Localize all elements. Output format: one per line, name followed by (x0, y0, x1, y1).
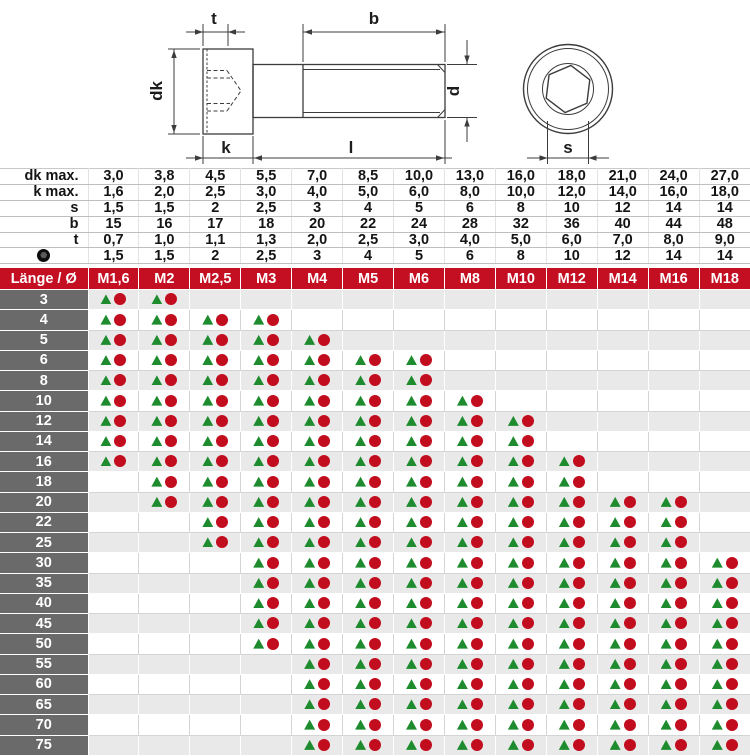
availability-cell (699, 492, 750, 512)
available-triangle-icon (100, 335, 111, 345)
availability-cell (546, 614, 597, 634)
screw-side-view (203, 49, 445, 134)
availability-cell (444, 573, 495, 593)
availability-cell (241, 695, 292, 715)
availability-cell (139, 674, 190, 694)
dim-label-s: s (563, 138, 572, 157)
spec-value: 1,1 (190, 232, 241, 248)
availability-cell (699, 573, 750, 593)
availability-markers (406, 739, 432, 751)
availability-cell (597, 553, 648, 573)
availability-cell (292, 472, 343, 492)
availability-markers (457, 496, 483, 508)
availability-cell (546, 290, 597, 310)
availability-cell (292, 411, 343, 431)
availability-cell (139, 391, 190, 411)
availability-cell (343, 614, 394, 634)
spec-row: 1,51,522,53456810121414 (0, 248, 750, 264)
available-circle-icon (471, 536, 483, 548)
availability-markers (559, 658, 585, 670)
availability-markers (661, 557, 687, 569)
availability-markers (610, 597, 636, 609)
available-circle-icon (573, 638, 585, 650)
available-triangle-icon (355, 618, 366, 628)
available-circle-icon (114, 293, 126, 305)
spec-table-body: dk max.3,03,84,55,57,08,510,013,016,018,… (0, 169, 750, 264)
availability-markers (406, 617, 432, 629)
available-circle-icon (420, 536, 432, 548)
available-triangle-icon (151, 456, 162, 466)
available-triangle-icon (253, 335, 264, 345)
availability-cell (597, 533, 648, 553)
availability-cell (241, 350, 292, 370)
availability-cell (699, 735, 750, 755)
available-circle-icon (318, 536, 330, 548)
availability-markers (508, 597, 534, 609)
availability-markers (100, 334, 126, 346)
available-circle-icon (318, 435, 330, 447)
available-circle-icon (522, 516, 534, 528)
availability-cell (292, 350, 343, 370)
availability-cell (292, 431, 343, 451)
available-triangle-icon (559, 618, 570, 628)
availability-cell (394, 512, 445, 532)
size-column-header: M16 (648, 268, 699, 290)
availability-cell (88, 614, 139, 634)
availability-cell (546, 674, 597, 694)
spec-value: 3,0 (394, 232, 445, 248)
available-triangle-icon (151, 294, 162, 304)
availability-cell (394, 391, 445, 411)
availability-markers (457, 435, 483, 447)
availability-cell (292, 330, 343, 350)
available-circle-icon (267, 476, 279, 488)
availability-markers (100, 435, 126, 447)
spec-row-label: s (0, 200, 88, 216)
availability-cell (292, 492, 343, 512)
available-triangle-icon (100, 396, 111, 406)
available-triangle-icon (355, 396, 366, 406)
availability-cell (495, 310, 546, 330)
available-triangle-icon (610, 720, 621, 730)
availability-cell (139, 553, 190, 573)
available-circle-icon (318, 496, 330, 508)
available-circle-icon (573, 658, 585, 670)
availability-markers (304, 516, 330, 528)
available-circle-icon (522, 557, 534, 569)
availability-cell (444, 695, 495, 715)
availability-cell (444, 350, 495, 370)
available-circle-icon (114, 395, 126, 407)
available-triangle-icon (457, 720, 468, 730)
screw-end-view (524, 45, 613, 134)
availability-cell (597, 573, 648, 593)
available-circle-icon (318, 739, 330, 751)
availability-cell (343, 350, 394, 370)
availability-cell (88, 431, 139, 451)
length-label: 8 (0, 371, 88, 391)
availability-markers (508, 435, 534, 447)
available-triangle-icon (304, 355, 315, 365)
available-triangle-icon (457, 396, 468, 406)
available-circle-icon (522, 638, 534, 650)
availability-cell (88, 715, 139, 735)
available-triangle-icon (406, 416, 417, 426)
available-circle-icon (420, 719, 432, 731)
available-triangle-icon (406, 659, 417, 669)
availability-markers (253, 435, 279, 447)
availability-markers (253, 395, 279, 407)
length-label: 75 (0, 735, 88, 755)
availability-cell (292, 452, 343, 472)
availability-markers (559, 516, 585, 528)
available-circle-icon (726, 557, 738, 569)
availability-markers (253, 496, 279, 508)
length-row: 65 (0, 695, 750, 715)
dim-label-t: t (211, 9, 217, 28)
availability-markers (151, 476, 177, 488)
available-circle-icon (267, 334, 279, 346)
availability-cell (394, 371, 445, 391)
availability-cell (292, 553, 343, 573)
availability-markers (253, 455, 279, 467)
available-triangle-icon (304, 558, 315, 568)
available-circle-icon (522, 476, 534, 488)
availability-markers (355, 496, 381, 508)
size-column-header: M10 (495, 268, 546, 290)
available-triangle-icon (304, 456, 315, 466)
availability-cell (699, 634, 750, 654)
spec-value: 14 (699, 200, 750, 216)
availability-cell (546, 533, 597, 553)
availability-markers (304, 374, 330, 386)
available-circle-icon (726, 719, 738, 731)
hidden-socket-lines (207, 71, 241, 112)
length-label: 3 (0, 290, 88, 310)
availability-cell (495, 431, 546, 451)
available-circle-icon (726, 617, 738, 629)
availability-markers (304, 638, 330, 650)
available-circle-icon (318, 658, 330, 670)
availability-markers (508, 455, 534, 467)
available-triangle-icon (304, 477, 315, 487)
availability-cell (444, 593, 495, 613)
available-circle-icon (369, 455, 381, 467)
available-circle-icon (726, 638, 738, 650)
available-circle-icon (726, 577, 738, 589)
availability-cell (88, 593, 139, 613)
availability-markers (559, 455, 585, 467)
available-circle-icon (471, 617, 483, 629)
available-circle-icon (216, 395, 228, 407)
availability-markers (559, 638, 585, 650)
length-label: 50 (0, 634, 88, 654)
availability-markers (304, 496, 330, 508)
available-circle-icon (624, 496, 636, 508)
available-circle-icon (522, 678, 534, 690)
available-triangle-icon (508, 456, 519, 466)
availability-markers (661, 536, 687, 548)
availability-markers (610, 617, 636, 629)
available-triangle-icon (100, 375, 111, 385)
availability-markers (406, 597, 432, 609)
available-circle-icon (369, 516, 381, 528)
availability-cell (190, 492, 241, 512)
availability-cell (139, 614, 190, 634)
availability-markers (304, 698, 330, 710)
available-triangle-icon (610, 699, 621, 709)
availability-markers (202, 455, 228, 467)
available-circle-icon (165, 334, 177, 346)
availability-cell (292, 634, 343, 654)
availability-cell (495, 695, 546, 715)
availability-cell (88, 654, 139, 674)
availability-cell (546, 634, 597, 654)
availability-markers (406, 455, 432, 467)
availability-markers (406, 395, 432, 407)
available-circle-icon (420, 354, 432, 366)
spec-value: 10,0 (495, 184, 546, 200)
available-circle-icon (318, 516, 330, 528)
matrix-header-row: Länge / ØM1,6M2M2,5M3M4M5M6M8M10M12M14M1… (0, 268, 750, 290)
availability-cell (139, 533, 190, 553)
available-circle-icon (522, 739, 534, 751)
availability-cell (190, 350, 241, 370)
availability-markers (559, 719, 585, 731)
spec-value: 3 (292, 200, 343, 216)
availability-cell (190, 330, 241, 350)
availability-markers (610, 638, 636, 650)
size-column-header: M8 (444, 268, 495, 290)
available-triangle-icon (559, 720, 570, 730)
availability-cell (444, 735, 495, 755)
available-triangle-icon (661, 578, 672, 588)
availability-cell (394, 634, 445, 654)
availability-cell (394, 492, 445, 512)
available-circle-icon (573, 719, 585, 731)
available-circle-icon (471, 739, 483, 751)
available-triangle-icon (610, 558, 621, 568)
spec-value: 5,0 (343, 184, 394, 200)
availability-cell (190, 674, 241, 694)
availability-cell (139, 452, 190, 472)
availability-markers (253, 597, 279, 609)
availability-cell (241, 330, 292, 350)
available-circle-icon (369, 617, 381, 629)
spec-value: 2 (190, 200, 241, 216)
availability-markers (661, 658, 687, 670)
availability-markers (406, 719, 432, 731)
availability-markers (151, 435, 177, 447)
availability-markers (661, 678, 687, 690)
available-circle-icon (726, 678, 738, 690)
available-circle-icon (369, 395, 381, 407)
available-triangle-icon (457, 699, 468, 709)
availability-markers (355, 354, 381, 366)
spec-value: 13,0 (444, 169, 495, 185)
availability-cell (139, 593, 190, 613)
available-triangle-icon (304, 396, 315, 406)
available-circle-icon (522, 435, 534, 447)
available-triangle-icon (457, 477, 468, 487)
availability-markers (508, 516, 534, 528)
available-circle-icon (522, 719, 534, 731)
spec-row-label: t (0, 232, 88, 248)
spec-value: 20 (292, 216, 343, 232)
available-circle-icon (573, 536, 585, 548)
available-circle-icon (624, 638, 636, 650)
available-triangle-icon (253, 578, 264, 588)
available-circle-icon (675, 617, 687, 629)
available-triangle-icon (355, 578, 366, 588)
availability-cell (444, 452, 495, 472)
availability-markers (508, 638, 534, 650)
availability-cell (190, 431, 241, 451)
available-triangle-icon (406, 699, 417, 709)
availability-cell (394, 654, 445, 674)
availability-markers (100, 395, 126, 407)
available-circle-icon (675, 719, 687, 731)
availability-cell (139, 735, 190, 755)
availability-cell (394, 452, 445, 472)
availability-markers (559, 557, 585, 569)
spec-row: b15161718202224283236404448 (0, 216, 750, 232)
spec-row: t0,71,01,11,32,02,53,04,05,06,07,08,09,0 (0, 232, 750, 248)
spec-value: 2,5 (190, 184, 241, 200)
availability-cell (343, 452, 394, 472)
available-circle-icon (369, 658, 381, 670)
availability-markers (100, 293, 126, 305)
spec-value: 16,0 (495, 169, 546, 185)
availability-cell (88, 674, 139, 694)
dim-label-d: d (444, 86, 463, 96)
available-triangle-icon (253, 355, 264, 365)
availability-markers (151, 374, 177, 386)
availability-cell (648, 391, 699, 411)
available-triangle-icon (457, 618, 468, 628)
available-triangle-icon (610, 639, 621, 649)
available-circle-icon (420, 617, 432, 629)
availability-cell (597, 391, 648, 411)
available-triangle-icon (457, 659, 468, 669)
available-circle-icon (624, 739, 636, 751)
available-circle-icon (522, 577, 534, 589)
availability-cell (495, 715, 546, 735)
available-triangle-icon (355, 537, 366, 547)
available-circle-icon (471, 678, 483, 690)
availability-cell (597, 472, 648, 492)
available-circle-icon (573, 577, 585, 589)
availability-markers (355, 435, 381, 447)
available-circle-icon (114, 374, 126, 386)
length-label: 14 (0, 431, 88, 451)
available-circle-icon (318, 678, 330, 690)
availability-cell (699, 431, 750, 451)
available-circle-icon (420, 678, 432, 690)
availability-cell (343, 634, 394, 654)
length-row: 12 (0, 411, 750, 431)
availability-markers (355, 658, 381, 670)
available-circle-icon (318, 617, 330, 629)
available-triangle-icon (610, 537, 621, 547)
availability-cell (699, 533, 750, 553)
available-triangle-icon (559, 456, 570, 466)
availability-cell (394, 533, 445, 553)
spec-value: 8,5 (343, 169, 394, 185)
available-circle-icon (471, 719, 483, 731)
availability-cell (88, 512, 139, 532)
availability-markers (253, 334, 279, 346)
availability-markers (508, 678, 534, 690)
available-triangle-icon (355, 497, 366, 507)
availability-markers (304, 536, 330, 548)
availability-cell (190, 472, 241, 492)
availability-cell (495, 654, 546, 674)
spec-value: 9,0 (699, 232, 750, 248)
availability-cell (546, 431, 597, 451)
length-label: 12 (0, 411, 88, 431)
availability-cell (292, 371, 343, 391)
available-triangle-icon (712, 679, 723, 689)
available-circle-icon (420, 374, 432, 386)
availability-cell (88, 735, 139, 755)
availability-cell (597, 350, 648, 370)
available-triangle-icon (661, 598, 672, 608)
available-triangle-icon (100, 315, 111, 325)
available-triangle-icon (100, 294, 111, 304)
availability-markers (559, 698, 585, 710)
available-circle-icon (624, 617, 636, 629)
availability-cell (139, 695, 190, 715)
available-triangle-icon (559, 477, 570, 487)
available-triangle-icon (304, 375, 315, 385)
spec-row-label: b (0, 216, 88, 232)
spec-value: 2 (190, 248, 241, 264)
available-circle-icon (522, 617, 534, 629)
available-circle-icon (522, 698, 534, 710)
available-triangle-icon (406, 517, 417, 527)
spec-value: 3,0 (88, 169, 139, 185)
available-triangle-icon (253, 537, 264, 547)
spec-value: 1,0 (139, 232, 190, 248)
availability-cell (88, 371, 139, 391)
availability-markers (406, 516, 432, 528)
spec-value: 7,0 (597, 232, 648, 248)
available-triangle-icon (457, 456, 468, 466)
availability-markers (406, 577, 432, 589)
availability-markers (559, 577, 585, 589)
length-label: 70 (0, 715, 88, 735)
availability-markers (304, 395, 330, 407)
available-triangle-icon (712, 659, 723, 669)
availability-cell (88, 391, 139, 411)
availability-cell (343, 512, 394, 532)
availability-markers (202, 536, 228, 548)
availability-markers (610, 719, 636, 731)
availability-markers (610, 678, 636, 690)
availability-markers (508, 577, 534, 589)
available-triangle-icon (202, 335, 213, 345)
length-label: 30 (0, 553, 88, 573)
available-triangle-icon (355, 416, 366, 426)
technical-drawing: t b dk d k l s (0, 0, 750, 168)
available-triangle-icon (355, 598, 366, 608)
availability-cell (546, 492, 597, 512)
available-triangle-icon (406, 477, 417, 487)
spec-value: 0,7 (88, 232, 139, 248)
available-circle-icon (726, 597, 738, 609)
available-triangle-icon (355, 477, 366, 487)
